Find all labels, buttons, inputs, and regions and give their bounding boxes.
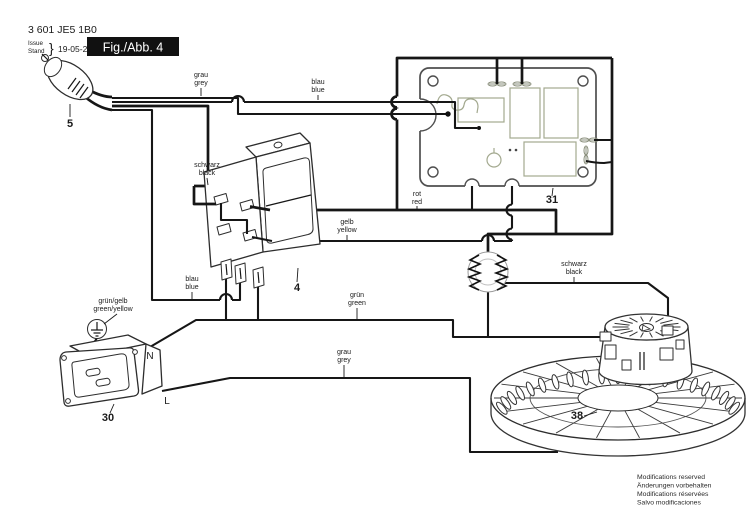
wire-label-en: blue xyxy=(185,284,198,291)
wire-schwarz-feed xyxy=(112,106,208,186)
wire-label-en: grey xyxy=(337,357,351,364)
ground-symbol-icon xyxy=(88,320,107,339)
pcb-hole xyxy=(578,167,588,177)
callout-4: 4 xyxy=(294,282,301,294)
footer-line: Modifications réservées xyxy=(637,491,709,498)
motor-38 xyxy=(491,314,745,456)
wire-label-de: grau xyxy=(194,72,208,79)
wire-label-en: black xyxy=(566,269,583,276)
wire-label-de: grün/gelb xyxy=(98,298,127,305)
wire-label-de: blau xyxy=(311,79,324,86)
wire-label-de: schwarz xyxy=(194,162,220,169)
callout-leader xyxy=(297,268,298,282)
terminal-label-l: L xyxy=(164,396,170,407)
wire-gruen xyxy=(150,320,606,347)
wire-label-de: grau xyxy=(337,349,351,356)
footer-line: Änderungen vorbehalten xyxy=(637,482,712,490)
wire-label-de: grün xyxy=(350,292,364,299)
brace: } xyxy=(49,40,54,56)
footer-notice: Modifications reserved Änderungen vorbeh… xyxy=(637,474,712,507)
figure-label: Fig./Abb. 4 xyxy=(103,41,163,55)
wire-label-de: rot xyxy=(413,191,421,198)
wire-label-de: gelb xyxy=(340,219,353,226)
wire-label-de: blau xyxy=(185,276,198,283)
pcb-hole xyxy=(428,76,438,86)
callout-30: 30 xyxy=(102,412,114,424)
wire-label-en: red xyxy=(412,199,422,206)
solder-dot xyxy=(477,126,481,130)
label-leader xyxy=(104,314,117,324)
wire-label-en: yellow xyxy=(337,227,357,234)
wire-label-en: black xyxy=(199,170,216,177)
wire-label-de: schwarz xyxy=(561,261,587,268)
wiring-diagram: 3 601 JE5 1B0 Issue Stand } 19-05-29 Fig… xyxy=(0,0,750,530)
solder-dot xyxy=(445,111,450,116)
wiring-diagram-page: 3 601 JE5 1B0 Issue Stand } 19-05-29 Fig… xyxy=(0,0,750,530)
pcb-31 xyxy=(415,68,598,187)
terminal-label-n: N xyxy=(146,351,153,362)
wire-label-en: green xyxy=(348,300,366,307)
footer-line: Salvo modificaciones xyxy=(637,500,701,507)
part-number: 3 601 JE5 1B0 xyxy=(28,24,97,36)
header: 3 601 JE5 1B0 Issue Stand } 19-05-29 Fig… xyxy=(28,24,179,56)
callout-38: 38 xyxy=(571,410,583,422)
pcb-dot xyxy=(515,149,518,152)
wire-label-en: grey xyxy=(194,80,208,87)
pcb-hole xyxy=(428,167,438,177)
socket-30 xyxy=(60,320,162,407)
thermal-protector xyxy=(468,252,508,292)
callout-5: 5 xyxy=(67,118,73,130)
plug-5 xyxy=(40,53,100,108)
wire-label-en: blue xyxy=(311,87,324,94)
issue-label: Issue xyxy=(28,40,44,47)
pcb-hole xyxy=(578,76,588,86)
pcb-dot xyxy=(509,149,512,152)
footer-line: Modifications reserved xyxy=(637,474,705,481)
wire-label-en: green/yellow xyxy=(93,306,133,313)
